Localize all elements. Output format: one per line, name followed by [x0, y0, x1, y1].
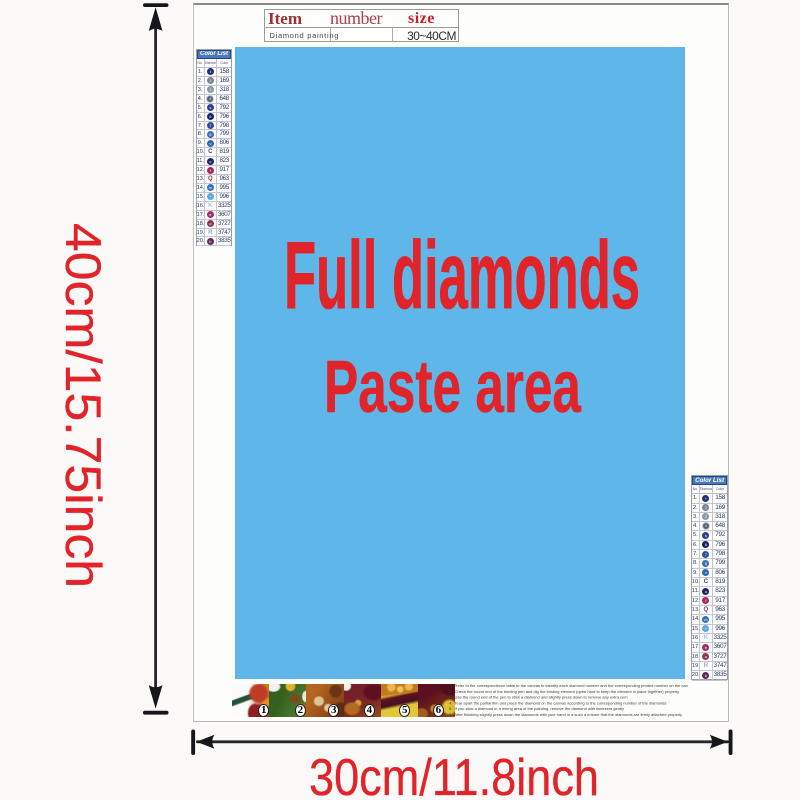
- svg-text:40cm/15.75inch: 40cm/15.75inch: [55, 223, 111, 588]
- svg-text:Full diamonds: Full diamonds: [284, 222, 640, 329]
- svg-text:30cm/11.8inch: 30cm/11.8inch: [309, 749, 599, 800]
- svg-text:Paste area: Paste area: [324, 345, 582, 428]
